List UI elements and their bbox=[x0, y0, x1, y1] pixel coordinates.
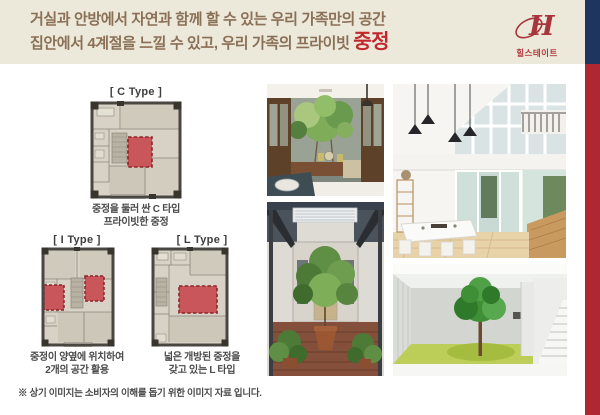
potted-tree-photo-icon bbox=[267, 202, 384, 376]
presentation-slide: 거실과 안방에서 자연과 함께 할 수 있는 우리 가족만의 공간 집안에서 4… bbox=[0, 0, 600, 415]
floorplan-l-icon bbox=[150, 246, 230, 348]
floorplan-c-drawing bbox=[89, 100, 183, 205]
floorplan-i-drawing bbox=[40, 246, 116, 353]
floorplan-c-caption-line2: 프라이빗한 중정 bbox=[56, 217, 216, 230]
floorplan-c-icon bbox=[89, 100, 183, 200]
photo-courtyard-folding-doors bbox=[267, 84, 384, 196]
disclaimer-text: ※ 상기 이미지는 소비자의 이해를 돕기 위한 이미지 자료 입니다. bbox=[18, 385, 262, 399]
white-interior-photo-icon bbox=[393, 84, 566, 258]
headline-line1: 거실과 안방에서 자연과 함께 할 수 있는 우리 가족만의 공간 bbox=[30, 10, 389, 29]
floorplan-c-caption-line1: 중정을 둘러 싼 C 타입 bbox=[56, 204, 216, 217]
floorplan-l-drawing bbox=[150, 246, 230, 353]
floorplan-l-caption-line2: 갖고 있는 L 타입 bbox=[122, 365, 282, 378]
headline-highlight: 중정 bbox=[353, 31, 389, 53]
photo-potted-tree-courtyard bbox=[267, 202, 384, 376]
model-tree-photo-icon bbox=[393, 264, 567, 376]
svg-text:H: H bbox=[528, 11, 556, 42]
header-band: 거실과 안방에서 자연과 함께 할 수 있는 우리 가족만의 공간 집안에서 4… bbox=[0, 0, 600, 64]
floorplan-i-icon bbox=[40, 246, 116, 348]
floorplan-i-label: [ I Type ] bbox=[17, 234, 137, 246]
hillstate-logo: H 힐스테이트 bbox=[503, 8, 571, 59]
photo-white-interior bbox=[393, 84, 566, 258]
floorplan-c-caption: 중정을 둘러 싼 C 타입 프라이빗한 중정 bbox=[56, 204, 216, 229]
floorplan-l-caption: 넓은 개방된 중정을 갖고 있는 L 타입 bbox=[122, 352, 282, 377]
headline-line2-text: 집안에서 4계절을 느낄 수 있고, 우리 가족의 프라이빗 bbox=[30, 35, 353, 52]
headline: 거실과 안방에서 자연과 함께 할 수 있는 우리 가족만의 공간 집안에서 4… bbox=[30, 10, 389, 55]
edge-stripe-navy bbox=[585, 0, 600, 64]
edge-stripe-red bbox=[585, 64, 600, 415]
hillstate-brand-name: 힐스테이트 bbox=[503, 47, 571, 59]
floorplan-c-label: [ C Type ] bbox=[76, 86, 196, 98]
floorplan-l-caption-line1: 넓은 개방된 중정을 bbox=[122, 352, 282, 365]
headline-line2: 집안에서 4계절을 느낄 수 있고, 우리 가족의 프라이빗 중정 bbox=[30, 31, 389, 55]
courtyard-photo-icon bbox=[267, 84, 384, 196]
photo-model-courtyard-tree bbox=[393, 264, 567, 376]
hillstate-monogram-icon: H bbox=[509, 8, 565, 42]
floorplan-l-label: [ L Type ] bbox=[142, 234, 262, 246]
